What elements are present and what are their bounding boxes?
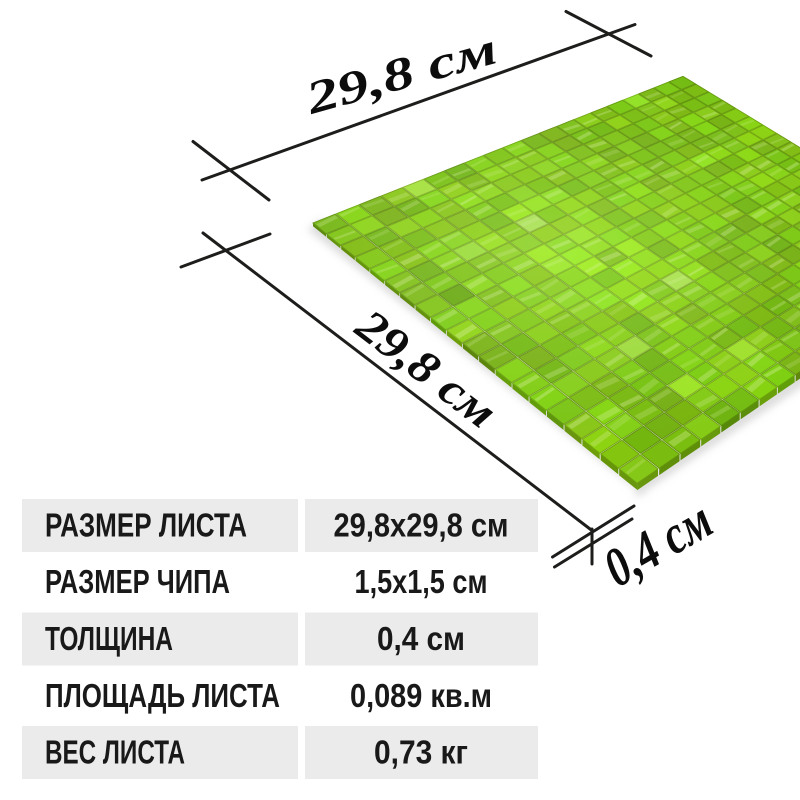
svg-text:0,4 см: 0,4 см xyxy=(377,620,465,657)
svg-text:ТОЛЩИНА: ТОЛЩИНА xyxy=(45,620,173,657)
svg-text:ВЕС ЛИСТА: ВЕС ЛИСТА xyxy=(45,734,185,771)
svg-text:РАЗМЕР ЛИСТА: РАЗМЕР ЛИСТА xyxy=(45,507,247,544)
svg-text:0,089 кв.м: 0,089 кв.м xyxy=(350,677,492,714)
svg-text:ПЛОЩАДЬ ЛИСТА: ПЛОЩАДЬ ЛИСТА xyxy=(45,677,280,714)
svg-text:0,73 кг: 0,73 кг xyxy=(374,734,468,771)
svg-text:29,8x29,8 см: 29,8x29,8 см xyxy=(334,507,509,544)
svg-text:РАЗМЕР ЧИПА: РАЗМЕР ЧИПА xyxy=(45,563,230,600)
svg-text:1,5x1,5 см: 1,5x1,5 см xyxy=(355,563,488,600)
